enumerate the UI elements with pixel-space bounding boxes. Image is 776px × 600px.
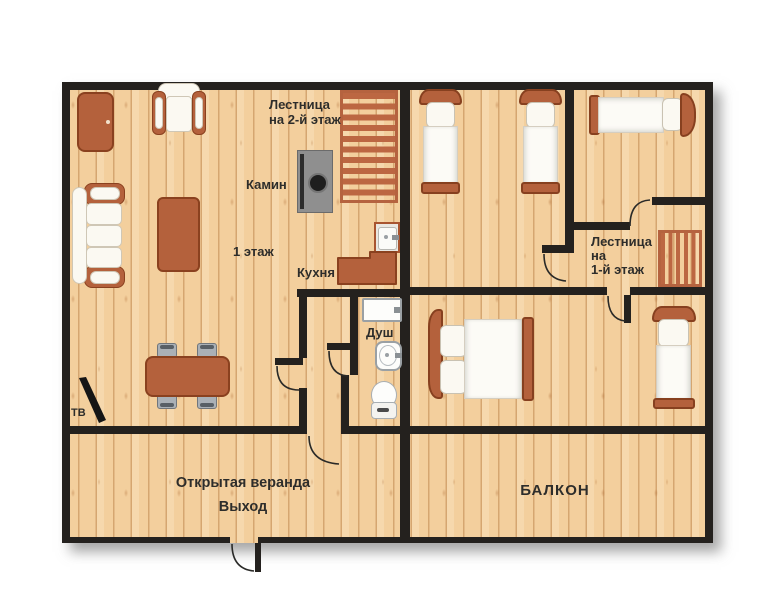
wall-bedrooms-right xyxy=(630,287,713,295)
wall-bedrooms-left xyxy=(400,287,607,295)
label-balcony: БАЛКОН xyxy=(500,483,610,498)
label-kitchen: Кухня xyxy=(297,265,335,280)
wall-hall-lower xyxy=(299,388,307,434)
washbasin-faucet xyxy=(395,353,402,358)
armchair-arm-pad xyxy=(155,97,163,129)
fireplace-burner xyxy=(308,173,328,193)
single-bed-horizontal xyxy=(589,93,696,137)
wall-shower-upper xyxy=(350,289,358,375)
washbasin-drain xyxy=(385,353,389,357)
label-stairs-up: Лестницана 2-й этаж xyxy=(269,97,341,127)
wall-outer-right xyxy=(705,82,713,543)
sofa-arm-pad xyxy=(90,187,120,200)
sofa-arm-pad xyxy=(90,271,120,284)
floor-plan: Лестницана 2-й этаж Камин 1 этаж Кухня Д… xyxy=(0,0,776,600)
wall-veranda-left xyxy=(62,426,307,434)
label-stairs-down: Лестницана1-й этаж xyxy=(591,235,652,277)
toilet-slot xyxy=(377,408,389,412)
wall-outer-bottom-right xyxy=(258,537,713,543)
wall-veranda-balcony xyxy=(341,426,713,434)
door-leaf-bedroom3 xyxy=(624,295,631,323)
kitchen-counter xyxy=(337,247,399,287)
sofa xyxy=(72,183,125,288)
armchair-seat xyxy=(166,96,192,132)
door-leaf-exit xyxy=(255,543,261,572)
toilet xyxy=(369,381,397,419)
stairs-to-2nd-floor xyxy=(340,90,398,203)
label-fireplace: Камин xyxy=(246,177,287,192)
single-bed-1 xyxy=(418,89,463,195)
wall-shower-lower xyxy=(341,375,349,434)
fireplace xyxy=(297,150,333,213)
door-leaf-living-hall xyxy=(275,358,303,365)
door-leaf-bedroom1 xyxy=(542,245,571,253)
door-arc-exit xyxy=(232,544,254,571)
single-bed-3 xyxy=(651,306,697,409)
label-exit: Выход xyxy=(160,500,326,515)
coffee-table xyxy=(157,197,200,272)
sofa-backrest xyxy=(72,187,87,284)
cabinet xyxy=(77,92,114,152)
stairs-to-1st-floor xyxy=(658,230,702,287)
sofa-cushion xyxy=(86,203,122,225)
label-floor1: 1 этаж xyxy=(233,244,274,259)
sofa-cushion xyxy=(86,225,122,247)
label-veranda: Открытая веранда xyxy=(160,476,326,491)
shower-faucet xyxy=(394,307,400,313)
armchair xyxy=(152,83,206,137)
kitchen-faucet xyxy=(392,235,399,240)
kitchen-drain xyxy=(384,235,388,239)
label-shower: Душ xyxy=(366,325,394,340)
cabinet-handle xyxy=(106,120,110,124)
wall-outer-left xyxy=(62,82,70,543)
fireplace-glass xyxy=(300,154,304,209)
shower-tray xyxy=(362,298,402,322)
armchair-arm-pad xyxy=(195,97,203,129)
dining-table xyxy=(145,356,230,397)
label-tv: ТВ xyxy=(71,406,86,421)
double-bed xyxy=(428,307,536,401)
wall-stairshall-left xyxy=(565,222,630,230)
wall-outer-bottom-left xyxy=(62,537,230,543)
wall-hall-upper xyxy=(299,289,307,358)
wall-stairshall-right xyxy=(652,197,713,205)
door-leaf-shower xyxy=(327,343,352,350)
single-bed-2 xyxy=(518,89,563,195)
washbasin xyxy=(375,341,402,371)
sofa-cushion xyxy=(86,247,122,268)
